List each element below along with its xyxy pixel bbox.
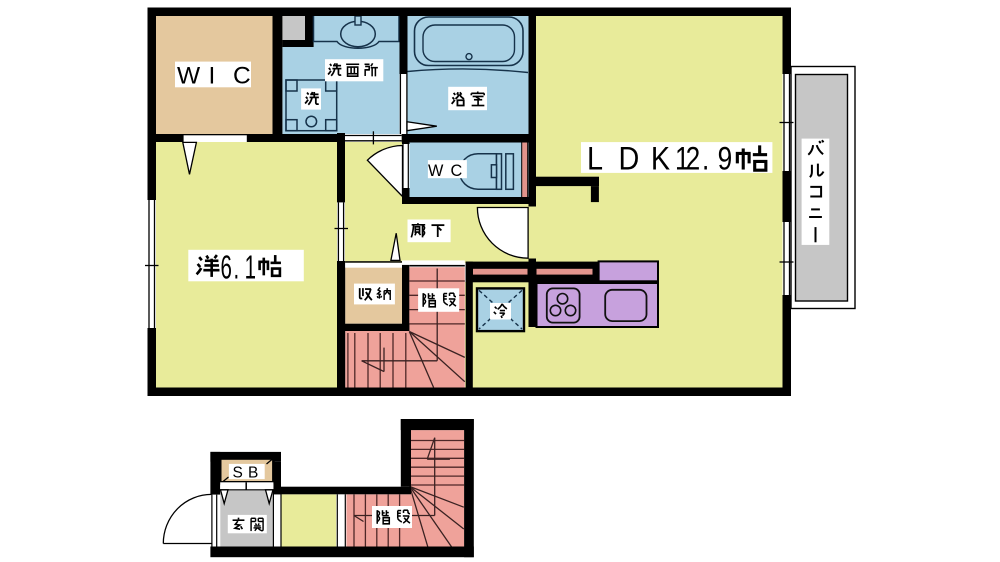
- svg-text:2: 2: [686, 142, 701, 177]
- svg-text:1: 1: [245, 248, 256, 285]
- svg-text:C: C: [451, 162, 463, 180]
- svg-text:K: K: [651, 141, 670, 177]
- svg-text:9: 9: [718, 142, 733, 177]
- svg-text:W: W: [177, 63, 201, 90]
- svg-text:.: .: [234, 248, 240, 285]
- svg-text:W: W: [428, 162, 444, 180]
- svg-text:S: S: [233, 464, 243, 481]
- svg-text:6: 6: [221, 248, 232, 285]
- svg-text:I: I: [209, 63, 216, 90]
- svg-text:.: .: [702, 142, 709, 177]
- svg-text:B: B: [248, 464, 258, 481]
- svg-text:L: L: [587, 141, 603, 177]
- svg-text:D: D: [619, 141, 640, 177]
- svg-text:C: C: [233, 63, 251, 90]
